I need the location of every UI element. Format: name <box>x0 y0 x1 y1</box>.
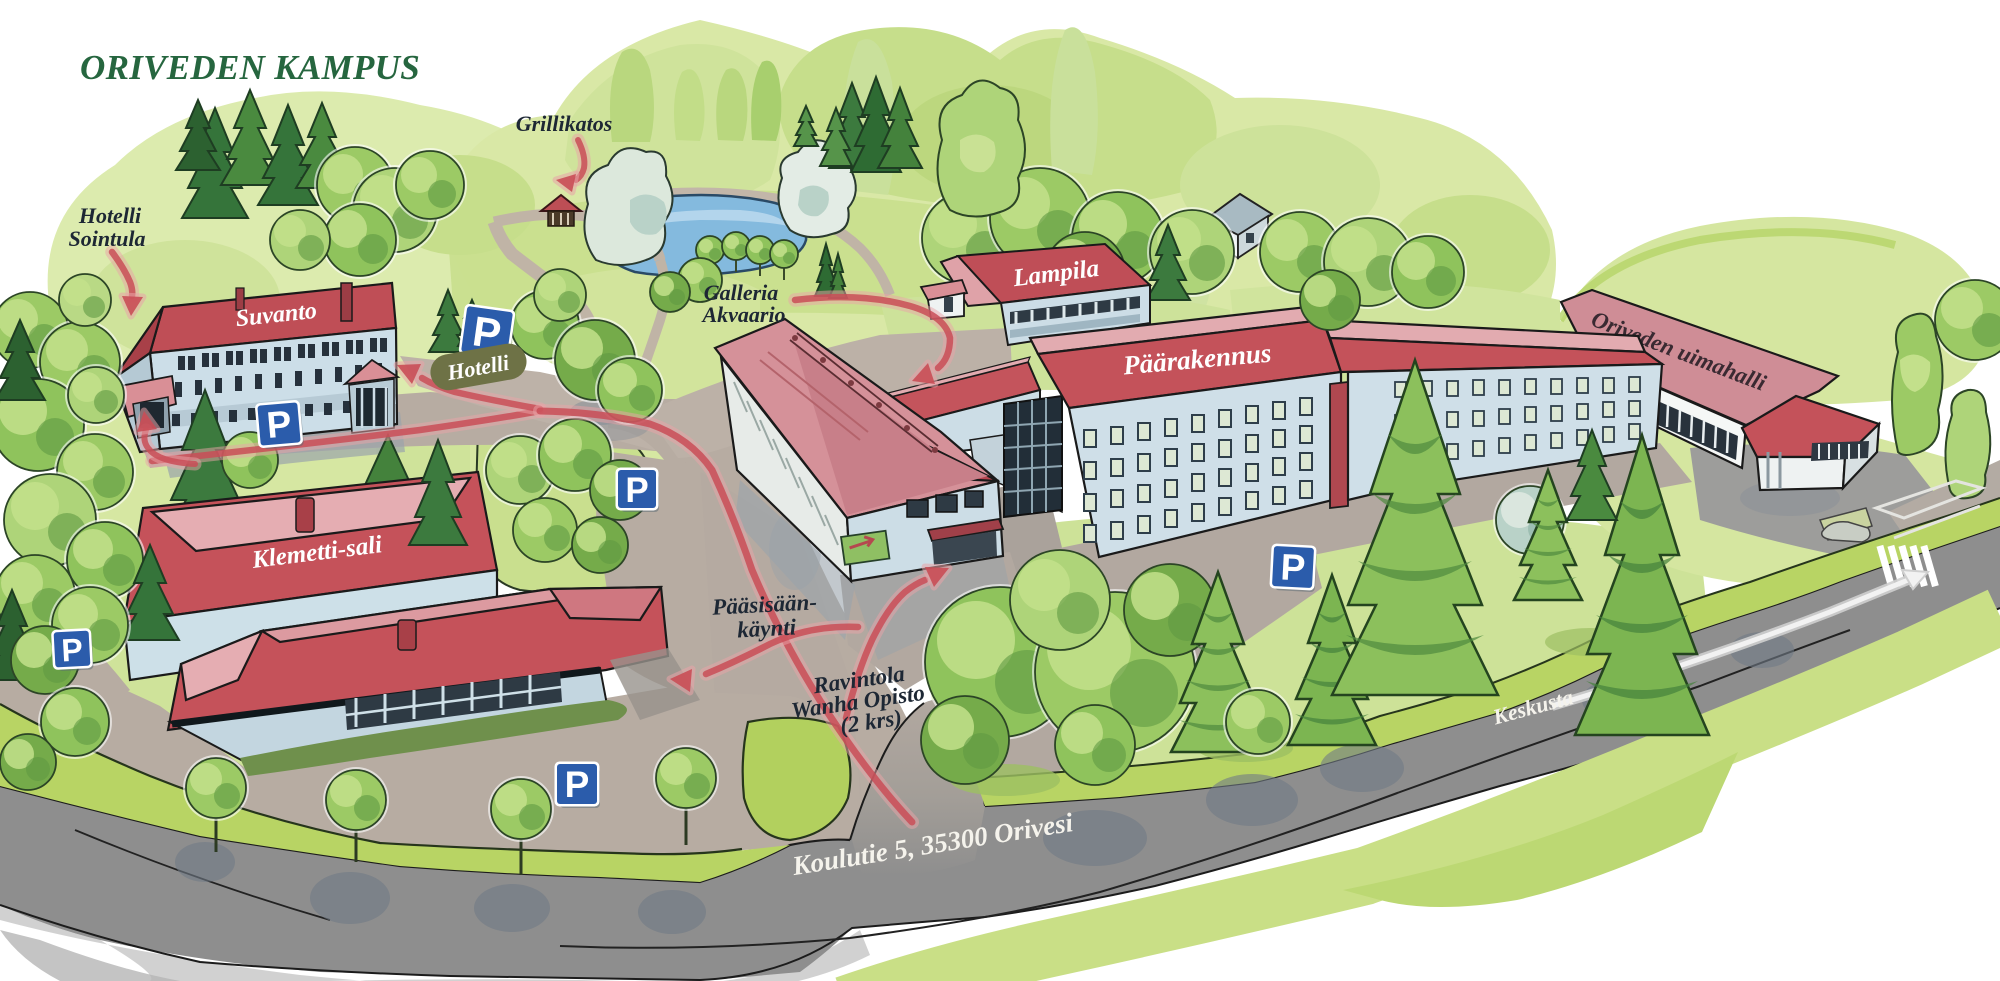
svg-text:Sointula: Sointula <box>68 226 145 251</box>
svg-text:Grillikatos: Grillikatos <box>516 111 613 136</box>
svg-text:P: P <box>565 764 590 805</box>
svg-text:P: P <box>1280 546 1307 588</box>
svg-text:P: P <box>625 471 648 510</box>
svg-text:Hotelli: Hotelli <box>78 203 142 228</box>
svg-text:ORIVEDEN KAMPUS: ORIVEDEN KAMPUS <box>80 48 420 87</box>
svg-text:Akvaario: Akvaario <box>700 302 785 327</box>
svg-text:käynti: käynti <box>737 614 798 642</box>
svg-text:P: P <box>265 403 293 446</box>
svg-text:P: P <box>60 631 83 668</box>
